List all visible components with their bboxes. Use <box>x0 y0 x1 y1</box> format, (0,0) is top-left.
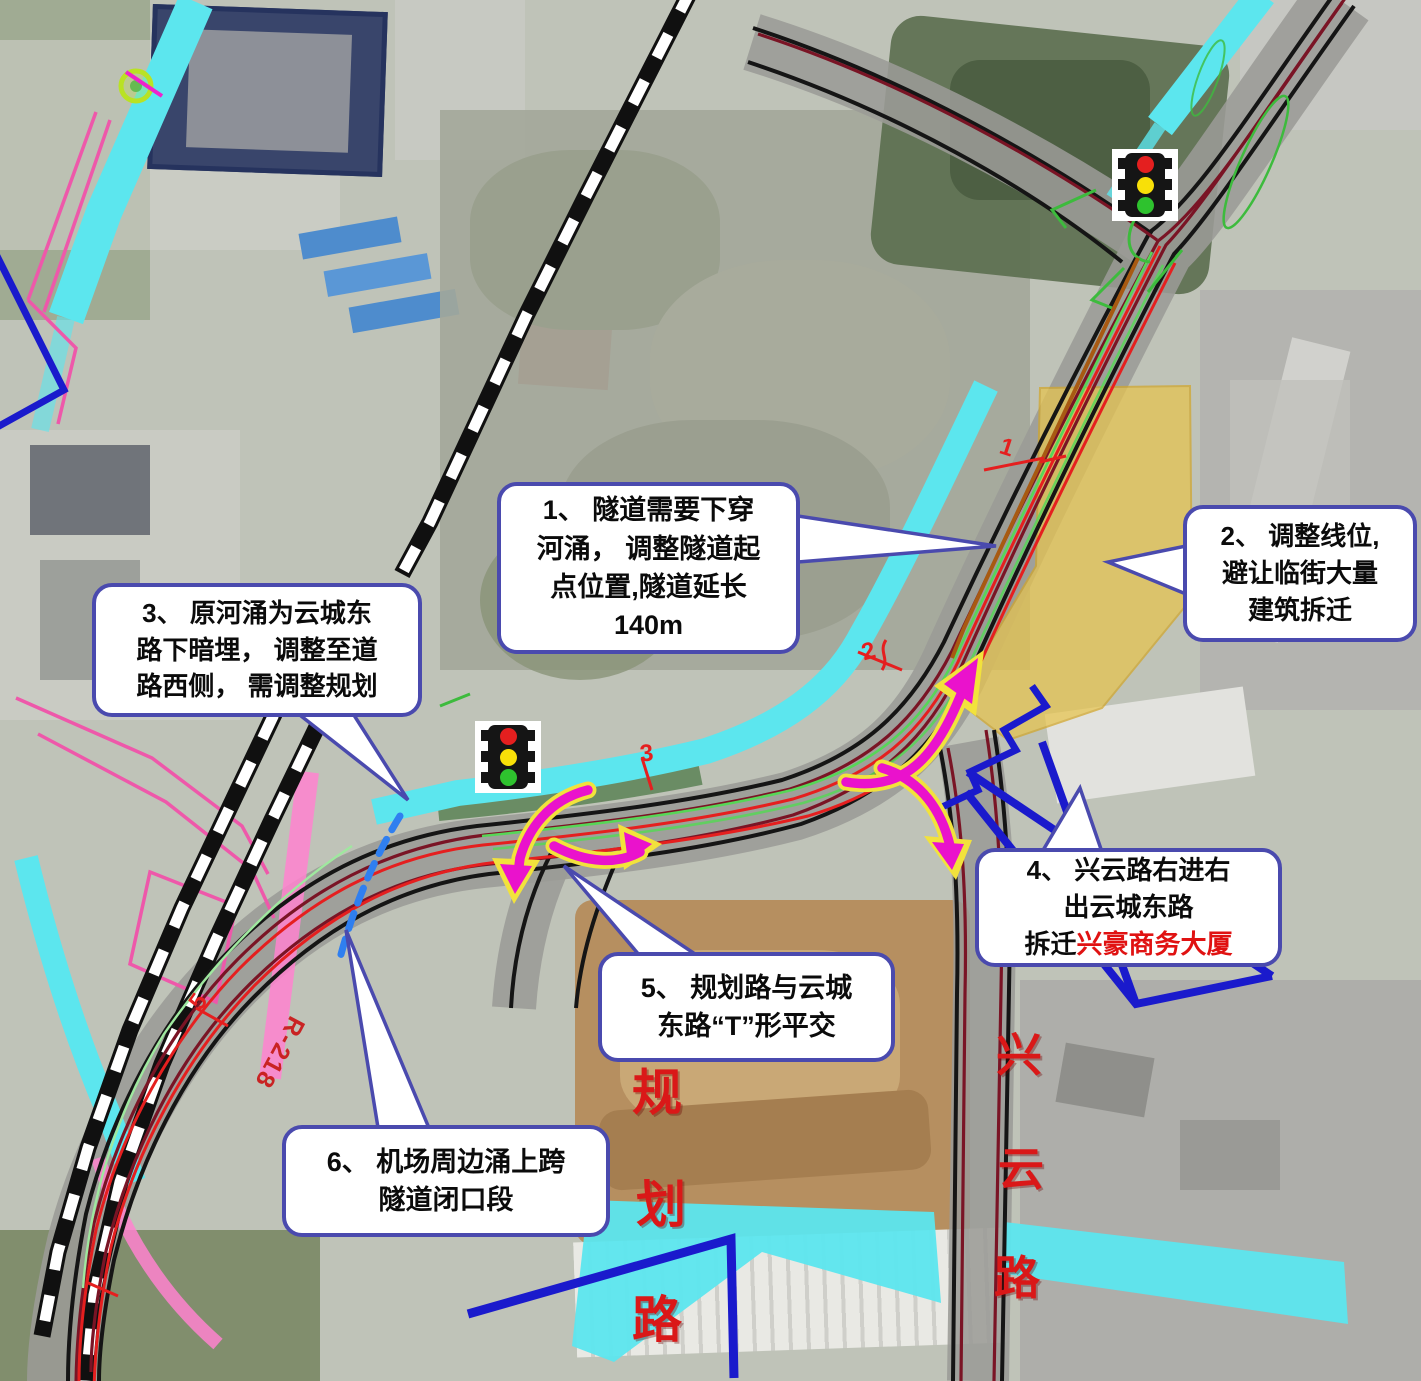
traffic-light-body <box>1125 153 1165 217</box>
yellow-light <box>500 749 517 766</box>
callout-5-t-junction: 5、 规划路与云城 东路“T”形平交 <box>598 952 895 1062</box>
callout-4-highlight: 兴豪商务大厦 <box>1077 929 1233 959</box>
callout-3-channel: 3、 原河涌为云城东 路下暗埋， 调整至道 路西侧， 需调整规划 <box>92 583 422 717</box>
callout-4-line3: 拆迁兴豪商务大厦 <box>1024 926 1232 963</box>
green-light <box>500 769 517 786</box>
guihua-road-label-char: 路 <box>632 1295 682 1345</box>
station-marker: 3 <box>639 741 655 766</box>
planning-map: 1、 隧道需要下穿 河涌， 调整隧道起 点位置,隧道延长 140m 2、 调整线… <box>0 0 1421 1381</box>
callout-4-prefix: 拆迁 <box>1024 929 1076 959</box>
guihua-road-label-char: 规 <box>632 1068 682 1118</box>
callout-1-tunnel: 1、 隧道需要下穿 河涌， 调整隧道起 点位置,隧道延长 140m <box>497 482 800 654</box>
traffic-light-icon <box>475 721 541 793</box>
guihua-road-label-char: 划 <box>636 1180 686 1230</box>
callout-6-closed-section: 6、 机场周边涌上跨 隧道闭口段 <box>282 1125 610 1237</box>
red-light <box>500 728 517 745</box>
callout-2-alignment: 2、 调整线位, 避让临街大量 建筑拆迁 <box>1183 505 1417 642</box>
callout-4-xingyun: 4、 兴云路右进右 出云城东路 拆迁兴豪商务大厦 <box>975 848 1282 967</box>
traffic-light-icon <box>1112 149 1178 221</box>
callout-4-text: 4、 兴云路右进右 出云城东路 <box>1027 852 1231 926</box>
yellow-light <box>1137 177 1154 194</box>
red-light <box>1137 156 1154 173</box>
traffic-light-body <box>488 725 528 789</box>
green-light <box>1137 197 1154 214</box>
xingyun-road-label-char: 兴 <box>996 1032 1042 1078</box>
xingyun-road-label-char: 路 <box>994 1255 1040 1301</box>
xingyun-road-label-char: 云 <box>998 1146 1044 1192</box>
